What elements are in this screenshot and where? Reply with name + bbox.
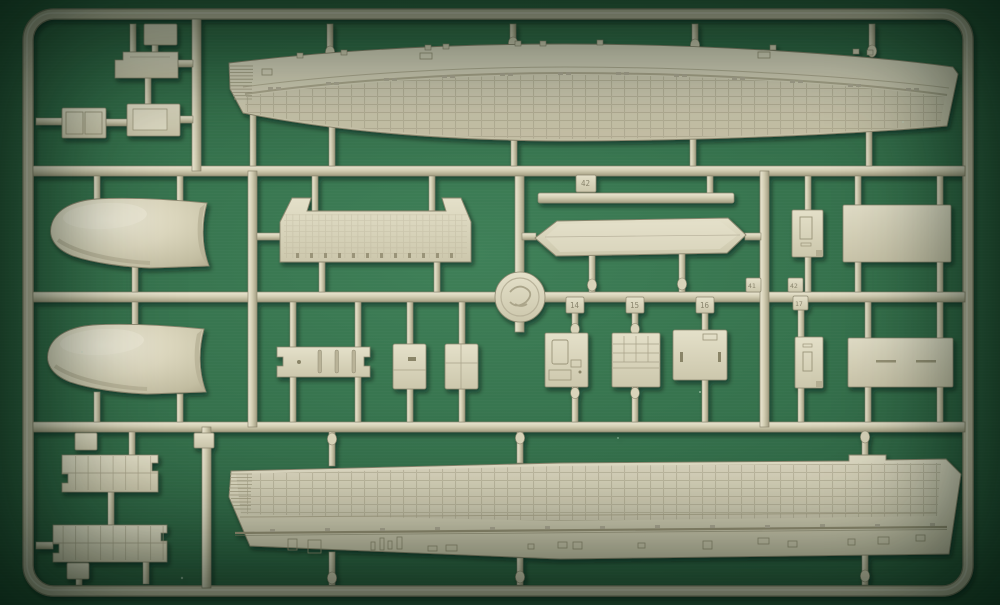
gate [152, 45, 158, 52]
runner-vertical-right [760, 171, 769, 427]
plate-c-insert [133, 109, 167, 130]
gate-bulb [515, 432, 524, 444]
gate-bulb [677, 278, 686, 290]
gate [865, 387, 871, 422]
gate [355, 377, 361, 422]
gate [798, 388, 804, 422]
part-walkway-1 [62, 455, 158, 492]
gate [702, 313, 708, 331]
gate-bulb [631, 388, 640, 399]
part-upper-hull-side [229, 40, 958, 141]
gate-bulb [571, 388, 580, 399]
part-nose-cowl-lower [48, 324, 206, 394]
gate [143, 562, 149, 584]
tag-16-number: 16 [700, 301, 710, 310]
runner-horizontal-c [33, 422, 965, 432]
gate [429, 176, 435, 211]
part-tiny-clip-1 [75, 433, 97, 450]
gate [434, 262, 440, 292]
gate [407, 302, 413, 344]
bulkhead14-hole [579, 371, 582, 374]
gate-bulb [860, 431, 869, 443]
gate [257, 233, 281, 240]
part-slitted-panel [848, 338, 953, 387]
gate [76, 579, 82, 585]
slotted-plate-hole [297, 360, 301, 364]
gate [36, 118, 62, 125]
gate [798, 310, 804, 338]
gate [132, 264, 138, 292]
gate [329, 126, 335, 166]
slit-right [916, 360, 936, 363]
gate [855, 262, 861, 292]
gate [106, 119, 127, 126]
deck-panel-grid [284, 214, 467, 258]
gate [132, 302, 138, 326]
gate [702, 380, 708, 422]
gate [937, 262, 943, 292]
tag-17-number: 17 [795, 300, 803, 308]
sprue-photo: 42 14 15 16 41 42 17 [0, 0, 1000, 605]
part-bulkhead-15 [612, 333, 660, 387]
gate [36, 542, 53, 549]
gate [855, 176, 861, 205]
part-fitting-panel [792, 210, 823, 257]
gate [177, 60, 193, 67]
gate [937, 302, 943, 339]
gate-bulb [327, 572, 336, 584]
gate [407, 389, 413, 422]
part-bulkhead-14 [545, 333, 588, 387]
tag-41-number: 41 [748, 282, 756, 290]
gate-bulb [515, 571, 524, 583]
bracket17-notch [816, 381, 822, 387]
gate [290, 377, 296, 422]
gate [177, 394, 183, 422]
gate [108, 492, 114, 525]
part-plate-a [115, 52, 178, 78]
gate-bulb [327, 433, 336, 445]
part-thin-strip [538, 193, 734, 203]
part-top-plate [144, 24, 177, 45]
gate [129, 432, 135, 455]
runner-vertical-topleft [192, 19, 201, 171]
part-elongated-platform [535, 218, 746, 256]
hatch1-slot [408, 357, 416, 361]
slotted-plate-body [277, 347, 370, 377]
part-corner-clip [67, 563, 89, 579]
fitting-notch [816, 250, 822, 257]
gate [180, 116, 193, 123]
gate [690, 137, 696, 166]
gate [707, 176, 713, 193]
gate-bulb [587, 279, 596, 291]
part-door-panel-16 [673, 330, 727, 380]
gate [319, 262, 325, 292]
part-bracket-17 [795, 337, 823, 388]
runner-horizontal-a [33, 166, 965, 176]
gate [805, 257, 811, 292]
gate [290, 302, 296, 348]
part-plate-b [62, 108, 106, 138]
gate [937, 387, 943, 422]
panel16-slot-right [718, 352, 721, 362]
panel16-slot-left [680, 352, 683, 362]
gate [866, 131, 872, 166]
part-tiny-clip-2 [194, 433, 214, 448]
gate [130, 24, 136, 52]
gate [745, 233, 761, 240]
part-slotted-plate [277, 347, 370, 377]
gate-bulb [860, 570, 869, 582]
tag-42-top-number: 42 [581, 179, 590, 188]
gate [312, 176, 318, 211]
gate [459, 302, 465, 344]
gate [805, 176, 811, 210]
runner-vertical-center [515, 176, 524, 276]
part-walkway-2 [53, 525, 167, 562]
photo-green-cutting-mat: 42 14 15 16 41 42 17 [0, 0, 1000, 605]
runner-vertical-left [248, 171, 257, 427]
gate [865, 302, 871, 339]
part-gridded-deck-panel [280, 198, 471, 262]
part-lower-hull-side [229, 455, 961, 559]
tag-15-number: 15 [630, 301, 639, 310]
gate [522, 233, 536, 240]
gate [459, 389, 465, 422]
part-large-flat-panel [843, 205, 951, 262]
part-plate-c [127, 104, 180, 136]
gate [355, 302, 361, 348]
tag-14-number: 14 [570, 301, 580, 310]
runner-vertical-bottomleft [202, 427, 211, 588]
gate [94, 392, 100, 422]
slit-left [876, 360, 896, 363]
gate [94, 176, 100, 202]
runner-hub [495, 272, 545, 322]
part-hatch-plate-1 [393, 344, 426, 389]
gate [511, 139, 517, 166]
gate [937, 176, 943, 205]
part-hatch-plate-2 [445, 344, 478, 389]
gate [145, 78, 151, 104]
part-nose-cowl-upper [51, 198, 209, 268]
sprue-tree: 42 14 15 16 41 42 17 [27, 13, 968, 591]
lower-hull-grid [236, 463, 941, 521]
tag-42-right-number: 42 [790, 282, 798, 290]
